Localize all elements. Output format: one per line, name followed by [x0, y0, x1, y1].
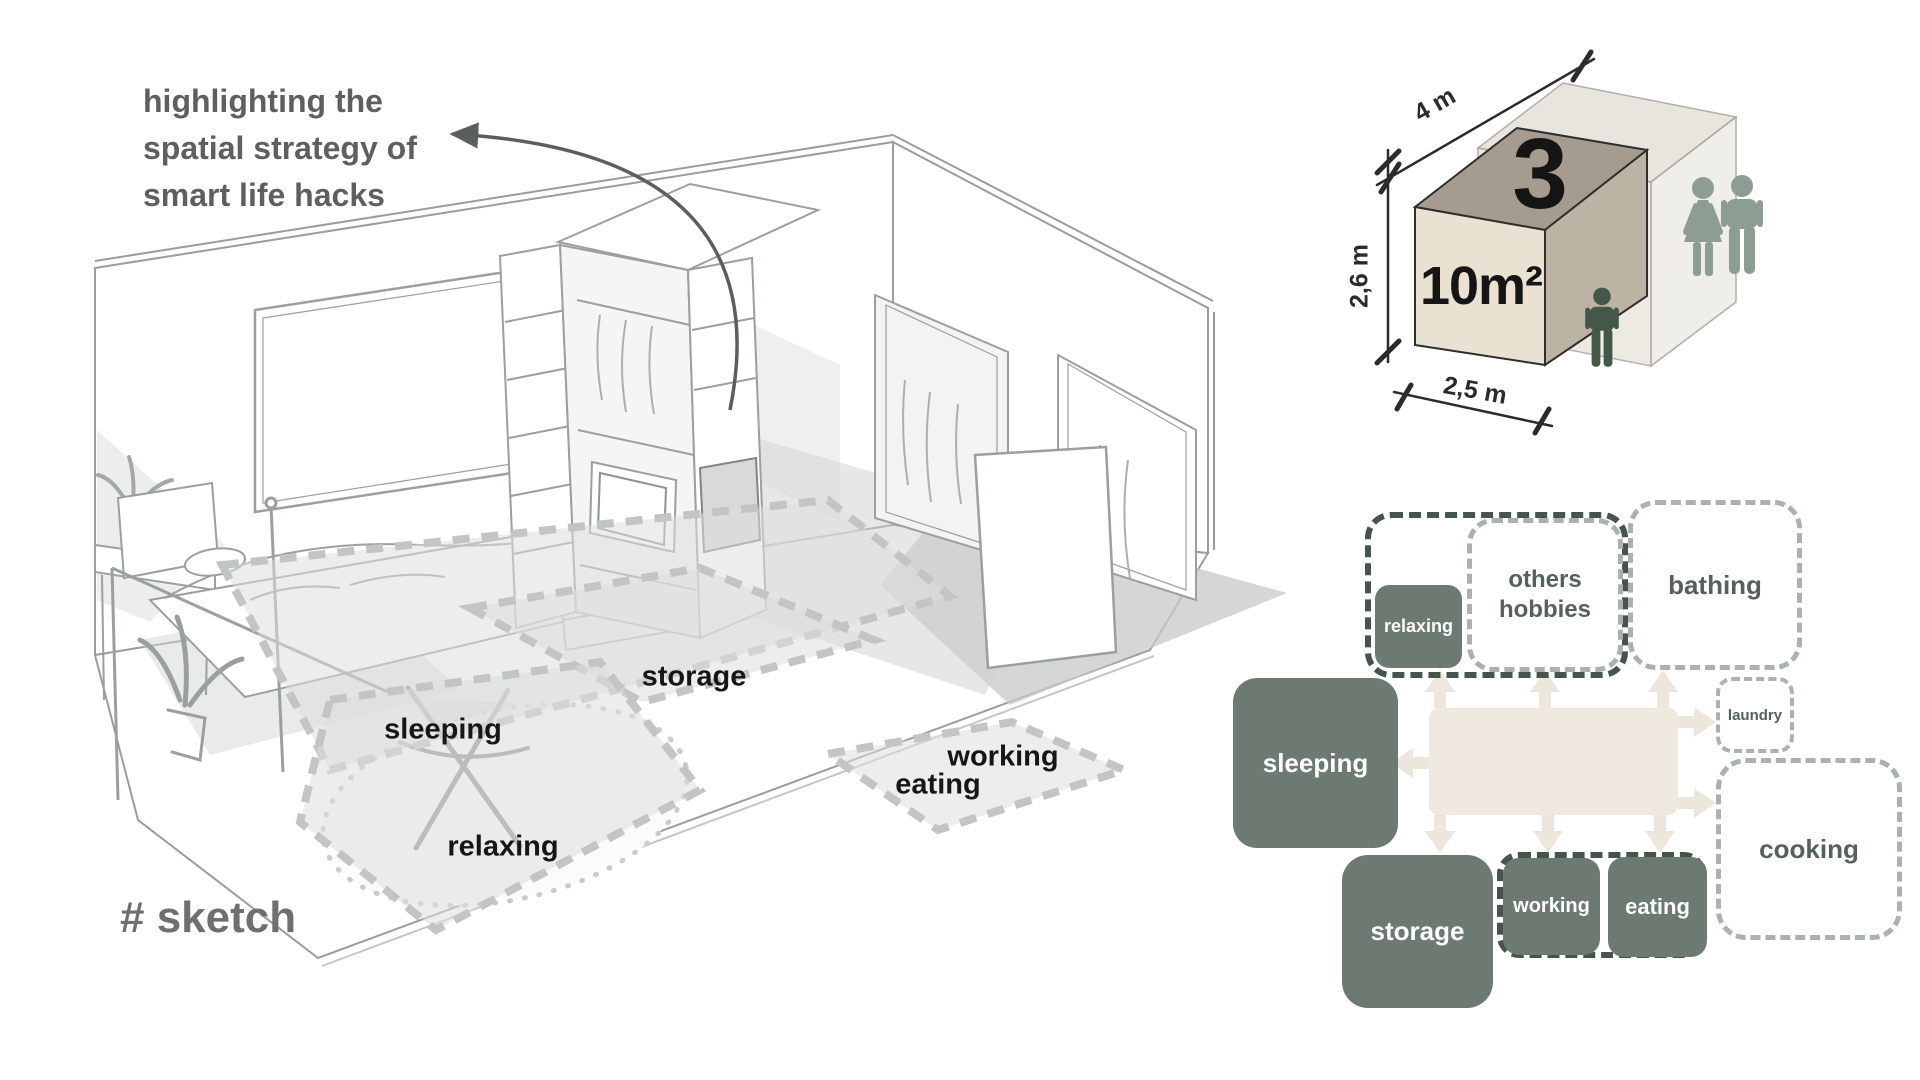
dim-height-label: 2,6 m — [1346, 244, 1375, 308]
diagram-box-working: working — [1503, 858, 1600, 955]
annotation-line: spatial strategy of — [143, 125, 417, 172]
room-sketch — [95, 134, 1287, 966]
zone-label-sleeping: sleeping — [384, 714, 502, 747]
diagram-box-relaxing: relaxing — [1375, 585, 1462, 668]
diagram-box-others-hobbies: others hobbies — [1467, 518, 1623, 672]
diagram-box-cooking: cooking — [1716, 758, 1902, 940]
zone-label-relaxing: relaxing — [447, 831, 558, 864]
annotation-line: smart life hacks — [143, 172, 417, 219]
cube-count: 3 — [1512, 117, 1568, 232]
poster — [975, 447, 1116, 668]
cube-area: 10m² — [1420, 255, 1542, 317]
zone-label-storage: storage — [642, 661, 747, 694]
zone-label-eating: eating — [895, 769, 980, 802]
arrow-right-icon — [1678, 707, 1716, 737]
annotation-text: highlighting the spatial strategy of sma… — [143, 78, 417, 219]
slide-canvas: { "palette": { "solid_box": "#6d7a72", "… — [0, 0, 1920, 1080]
diagram-box-storage: storage — [1342, 855, 1493, 1008]
sketch-tag: # sketch — [120, 893, 296, 943]
wall-board — [255, 268, 532, 512]
diagram-box-bathing: bathing — [1628, 500, 1802, 670]
diagram-box-sleeping: sleeping — [1233, 678, 1398, 848]
annotation-line: highlighting the — [143, 78, 417, 125]
arrow-down-icon — [1425, 815, 1455, 853]
arrow-down-icon — [1645, 815, 1675, 853]
diagram-box-eating: eating — [1608, 857, 1707, 957]
arrow-right-icon — [1678, 788, 1716, 818]
arrow-up-icon — [1648, 670, 1678, 708]
hub — [1391, 670, 1716, 853]
arrow-down-icon — [1533, 815, 1563, 853]
diagram-box-laundry: laundry — [1716, 677, 1794, 753]
